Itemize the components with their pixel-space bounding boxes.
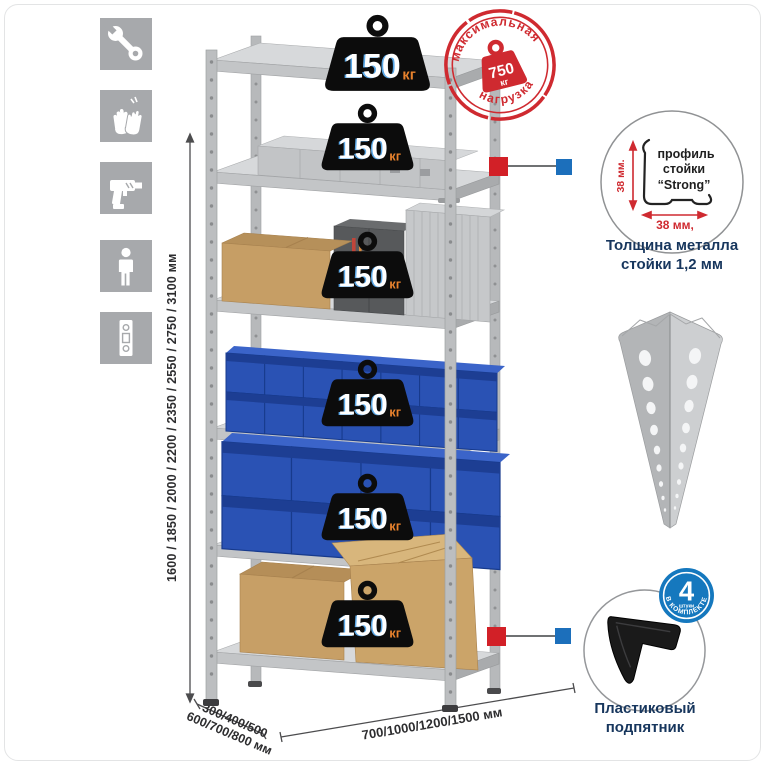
svg-text:кг: кг bbox=[402, 68, 415, 84]
svg-text:кг: кг bbox=[389, 276, 401, 291]
svg-text:150: 150 bbox=[338, 388, 388, 421]
svg-text:кг: кг bbox=[389, 148, 401, 163]
callout-end-top bbox=[556, 159, 572, 175]
svg-text:150: 150 bbox=[338, 609, 388, 642]
callout-line-top bbox=[506, 165, 558, 167]
shelf-load-badge-1: 150150кг bbox=[321, 14, 434, 95]
kettlebell-ring bbox=[370, 18, 386, 34]
callout-anchor-bottom bbox=[487, 627, 506, 646]
svg-text:кг: кг bbox=[389, 404, 401, 419]
rack-foot bbox=[203, 699, 219, 706]
shelf-load-badge-5: 150150кг bbox=[318, 473, 417, 544]
svg-text:4: 4 bbox=[679, 576, 695, 607]
quantity-badge: 4 штуки В КОМПЛЕКТЕ bbox=[658, 567, 715, 624]
rack-foot bbox=[248, 681, 262, 687]
callout-line-bottom bbox=[504, 635, 557, 637]
svg-text:кг: кг bbox=[389, 625, 401, 640]
product-infographic: 1600 / 1850 / 2000 / 2200 / 2350 / 2550 … bbox=[0, 0, 765, 765]
svg-text:150: 150 bbox=[338, 132, 388, 165]
svg-text:150: 150 bbox=[338, 502, 388, 535]
shelf-load-badge-6: 150150кг bbox=[318, 580, 417, 651]
shelf-load-badge-3: 150150кг bbox=[318, 231, 417, 302]
rack-foot bbox=[487, 688, 501, 694]
rack-foot bbox=[442, 705, 458, 712]
svg-text:кг: кг bbox=[389, 518, 401, 533]
shelf-load-badge-4: 150150кг bbox=[318, 359, 417, 430]
shelf-load-badge-2: 150150кг bbox=[318, 103, 417, 174]
svg-text:150: 150 bbox=[344, 47, 401, 85]
callout-anchor-top bbox=[489, 157, 508, 176]
svg-text:150: 150 bbox=[338, 260, 388, 293]
callout-end-bottom bbox=[555, 628, 571, 644]
